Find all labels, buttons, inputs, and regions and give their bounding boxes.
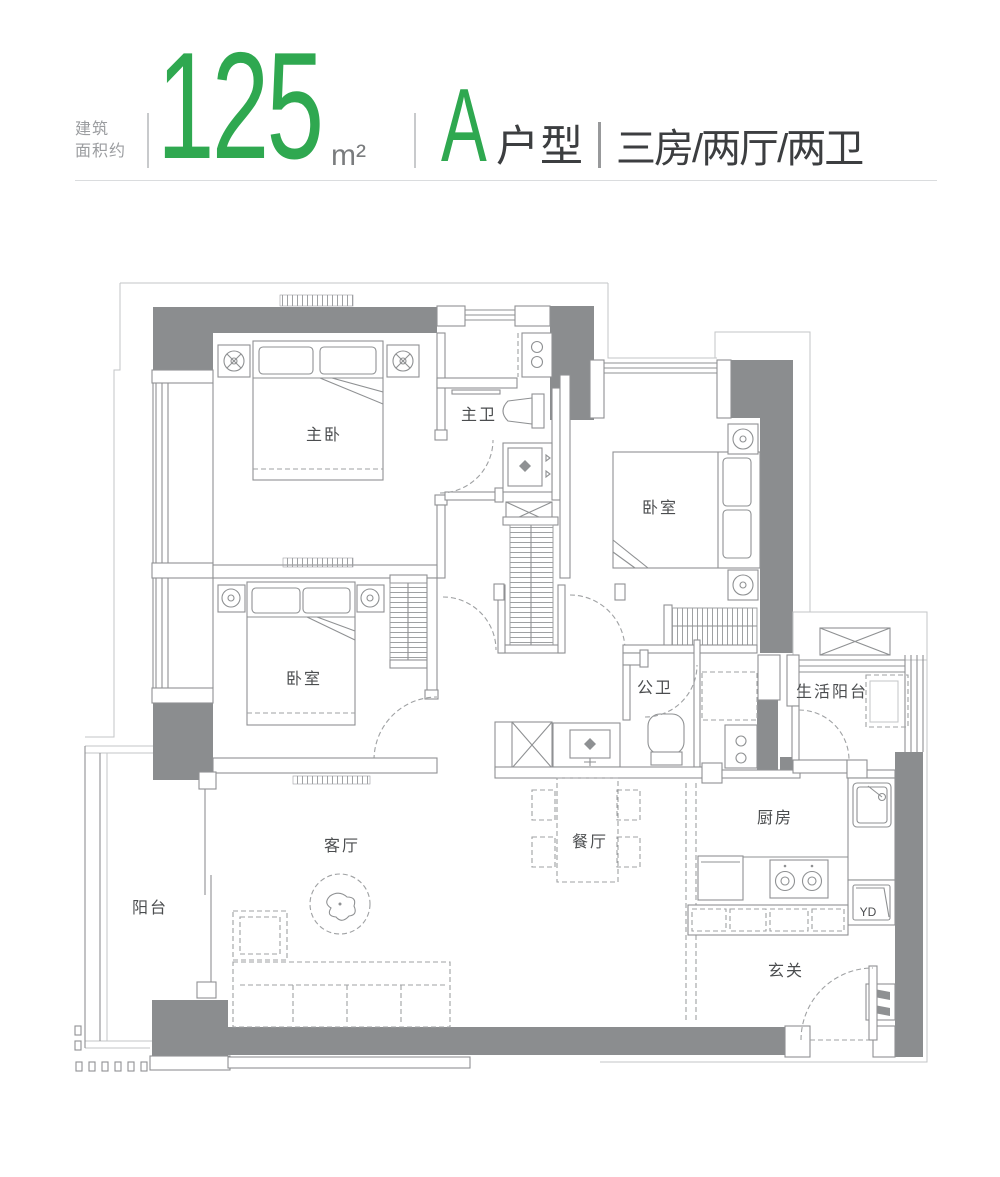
- bed-symbol: [253, 341, 383, 480]
- hall-closet-shaft: [443, 502, 625, 653]
- room-label-master-bathroom: 主卫: [461, 406, 497, 424]
- living-room: 客厅: [213, 758, 450, 1027]
- bed-symbol: [613, 452, 760, 568]
- floorplan-page: 建筑 面积约 125 m² A 户型 三房/两厅/两卫: [0, 0, 1000, 1177]
- door-arc: [799, 710, 849, 760]
- bedroom-east: 卧室: [560, 360, 760, 653]
- bedroom-west: 卧室: [218, 575, 438, 760]
- sofa-symbol: [233, 911, 450, 1027]
- sink-icon: [553, 723, 620, 767]
- shower-area: [702, 672, 757, 720]
- bed-symbol: [247, 582, 355, 725]
- stove-icon: [770, 860, 828, 898]
- room-label-foyer: 玄关: [768, 962, 804, 980]
- room-label-dining: 餐厅: [572, 833, 608, 851]
- entry-door-arc: [801, 968, 873, 1040]
- shower-icon: [503, 443, 552, 492]
- dining-room: 餐厅: [532, 778, 640, 882]
- master-bathroom: 主卫: [440, 388, 560, 502]
- foyer: 玄关: [768, 962, 895, 1057]
- sliding-door-icon: [205, 789, 211, 982]
- door-arc: [440, 440, 493, 493]
- room-label-bedroom-west: 卧室: [286, 670, 322, 688]
- room-label-living: 客厅: [324, 837, 360, 855]
- room-label-bedroom-east: 卧室: [642, 499, 678, 517]
- chair-symbol: [617, 837, 640, 867]
- dining-table-symbol: [557, 778, 618, 882]
- door-arc: [374, 697, 437, 760]
- tv-console-icon: [293, 776, 370, 784]
- kitchen: YD 厨房: [686, 760, 895, 1022]
- door-arc: [443, 597, 496, 650]
- plant-icon: [310, 874, 370, 934]
- room-label-master-bedroom: 主卧: [306, 426, 342, 444]
- washer-icon: [866, 675, 908, 727]
- balcony: 阳台: [75, 746, 470, 1071]
- public-bathroom: 公卫: [623, 640, 757, 768]
- chair-symbol: [532, 790, 555, 820]
- chair-symbol: [617, 790, 640, 820]
- room-label-kitchen: 厨房: [757, 809, 793, 827]
- master-bath-vanity: [437, 306, 552, 394]
- room-label-balcony: 阳台: [132, 899, 168, 917]
- chair-symbol: [532, 837, 555, 867]
- door-leaf: [792, 706, 799, 760]
- flue-icon: YD: [848, 880, 895, 925]
- entry-door-leaf: [869, 966, 877, 1040]
- window-tick-band-top: [280, 295, 353, 306]
- fridge-icon: [698, 856, 743, 900]
- kitchen-sink-icon: [848, 778, 895, 880]
- toilet-icon: [648, 714, 684, 765]
- door-arc: [570, 595, 625, 650]
- floor-plan: 主卧: [0, 0, 1000, 1177]
- master-bedroom: 主卧: [213, 333, 447, 578]
- basin-alcove: [495, 665, 722, 783]
- room-label-service-balcony: 生活阳台: [796, 683, 868, 701]
- flue-label: YD: [860, 905, 877, 919]
- toilet-icon: [503, 394, 544, 428]
- window-tick-band-divider: [283, 558, 353, 567]
- room-label-public-bathroom: 公卫: [637, 680, 673, 697]
